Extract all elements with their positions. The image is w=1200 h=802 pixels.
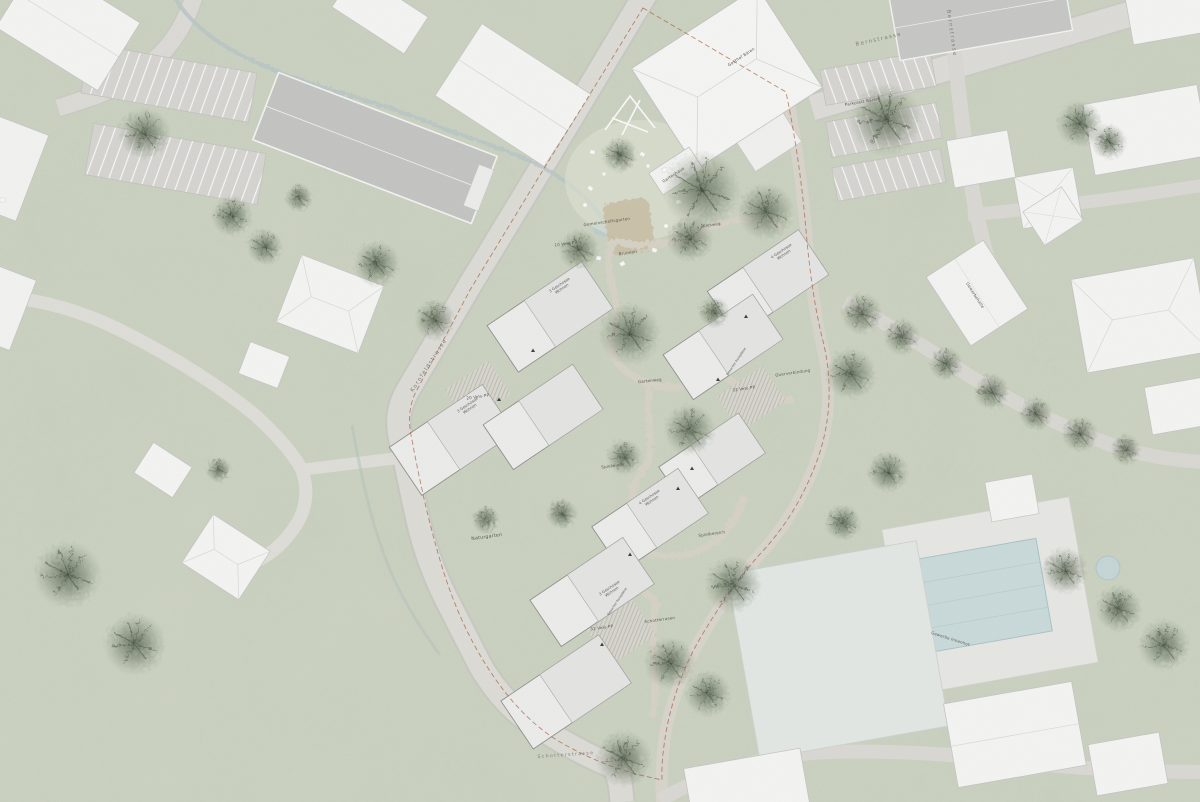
site-plan-canvas: Bernstrasse Bernstrasse Kornfeldstrasse …	[0, 0, 1200, 802]
site-plan: Bernstrasse Bernstrasse Kornfeldstrasse …	[0, 0, 1200, 802]
paper-grain	[0, 0, 1200, 802]
